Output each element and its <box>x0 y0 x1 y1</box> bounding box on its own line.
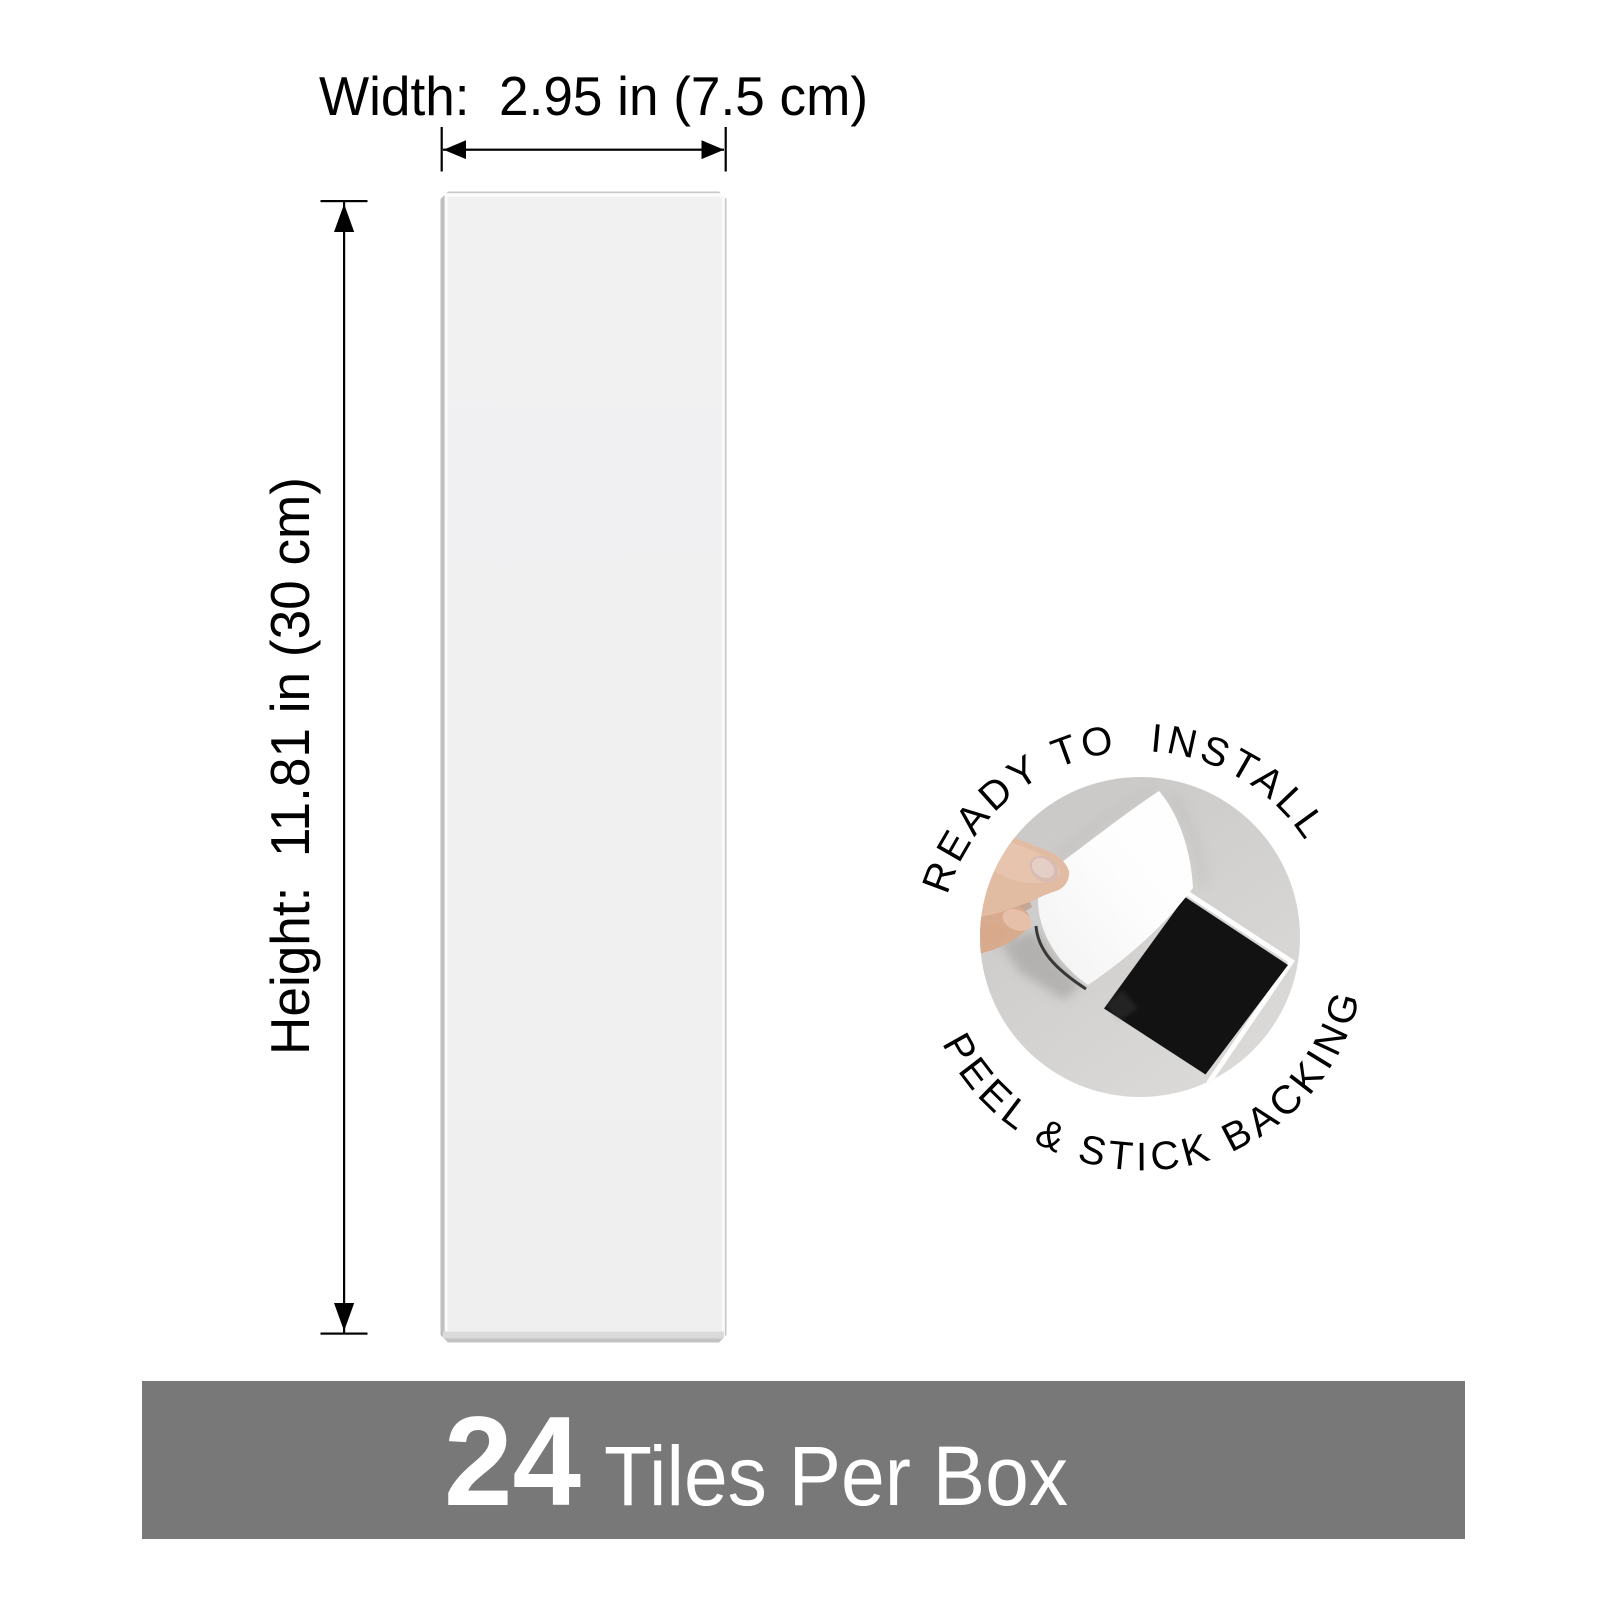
svg-text:Tiles Per Box: Tiles Per Box <box>604 1429 1068 1523</box>
svg-text:Height: 11.81 in (30 cm): Height: 11.81 in (30 cm) <box>259 477 321 1055</box>
svg-text:24: 24 <box>444 1390 581 1532</box>
svg-text:Width: 2.95 in (7.5 cm): Width: 2.95 in (7.5 cm) <box>319 65 868 127</box>
